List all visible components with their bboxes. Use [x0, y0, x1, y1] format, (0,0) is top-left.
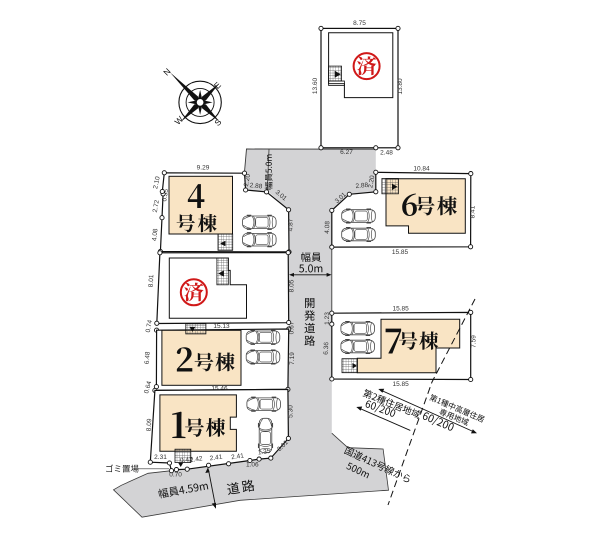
svg-text:8.05: 8.05	[288, 279, 295, 292]
svg-text:10.84: 10.84	[413, 166, 430, 173]
svg-text:7.59: 7.59	[470, 335, 477, 348]
svg-text:2.88: 2.88	[249, 182, 263, 190]
svg-text:6.48: 6.48	[144, 351, 152, 365]
svg-text:6.36: 6.36	[323, 342, 331, 355]
svg-text:4.08: 4.08	[151, 228, 159, 242]
svg-text:15.85: 15.85	[392, 381, 409, 388]
svg-text:9.29: 9.29	[197, 165, 210, 172]
svg-text:8.41: 8.41	[470, 205, 477, 218]
svg-text:15.85: 15.85	[392, 249, 409, 256]
svg-text:15.85: 15.85	[392, 306, 409, 313]
svg-text:2.48: 2.48	[380, 149, 393, 156]
svg-text:8.01: 8.01	[148, 274, 156, 287]
svg-text:8.09: 8.09	[146, 418, 154, 431]
svg-text:1.06: 1.06	[246, 461, 259, 468]
svg-text:2.88: 2.88	[355, 182, 369, 190]
svg-text:4.08: 4.08	[324, 221, 331, 234]
svg-text:6.27: 6.27	[340, 149, 353, 156]
svg-text:2.31: 2.31	[154, 454, 167, 461]
svg-text:13.60: 13.60	[312, 77, 319, 94]
svg-text:5.30: 5.30	[288, 405, 295, 418]
svg-text:8.75: 8.75	[353, 20, 366, 27]
svg-text:4.87: 4.87	[287, 218, 294, 231]
svg-text:13.80: 13.80	[397, 78, 404, 95]
svg-text:7.19: 7.19	[289, 352, 296, 365]
